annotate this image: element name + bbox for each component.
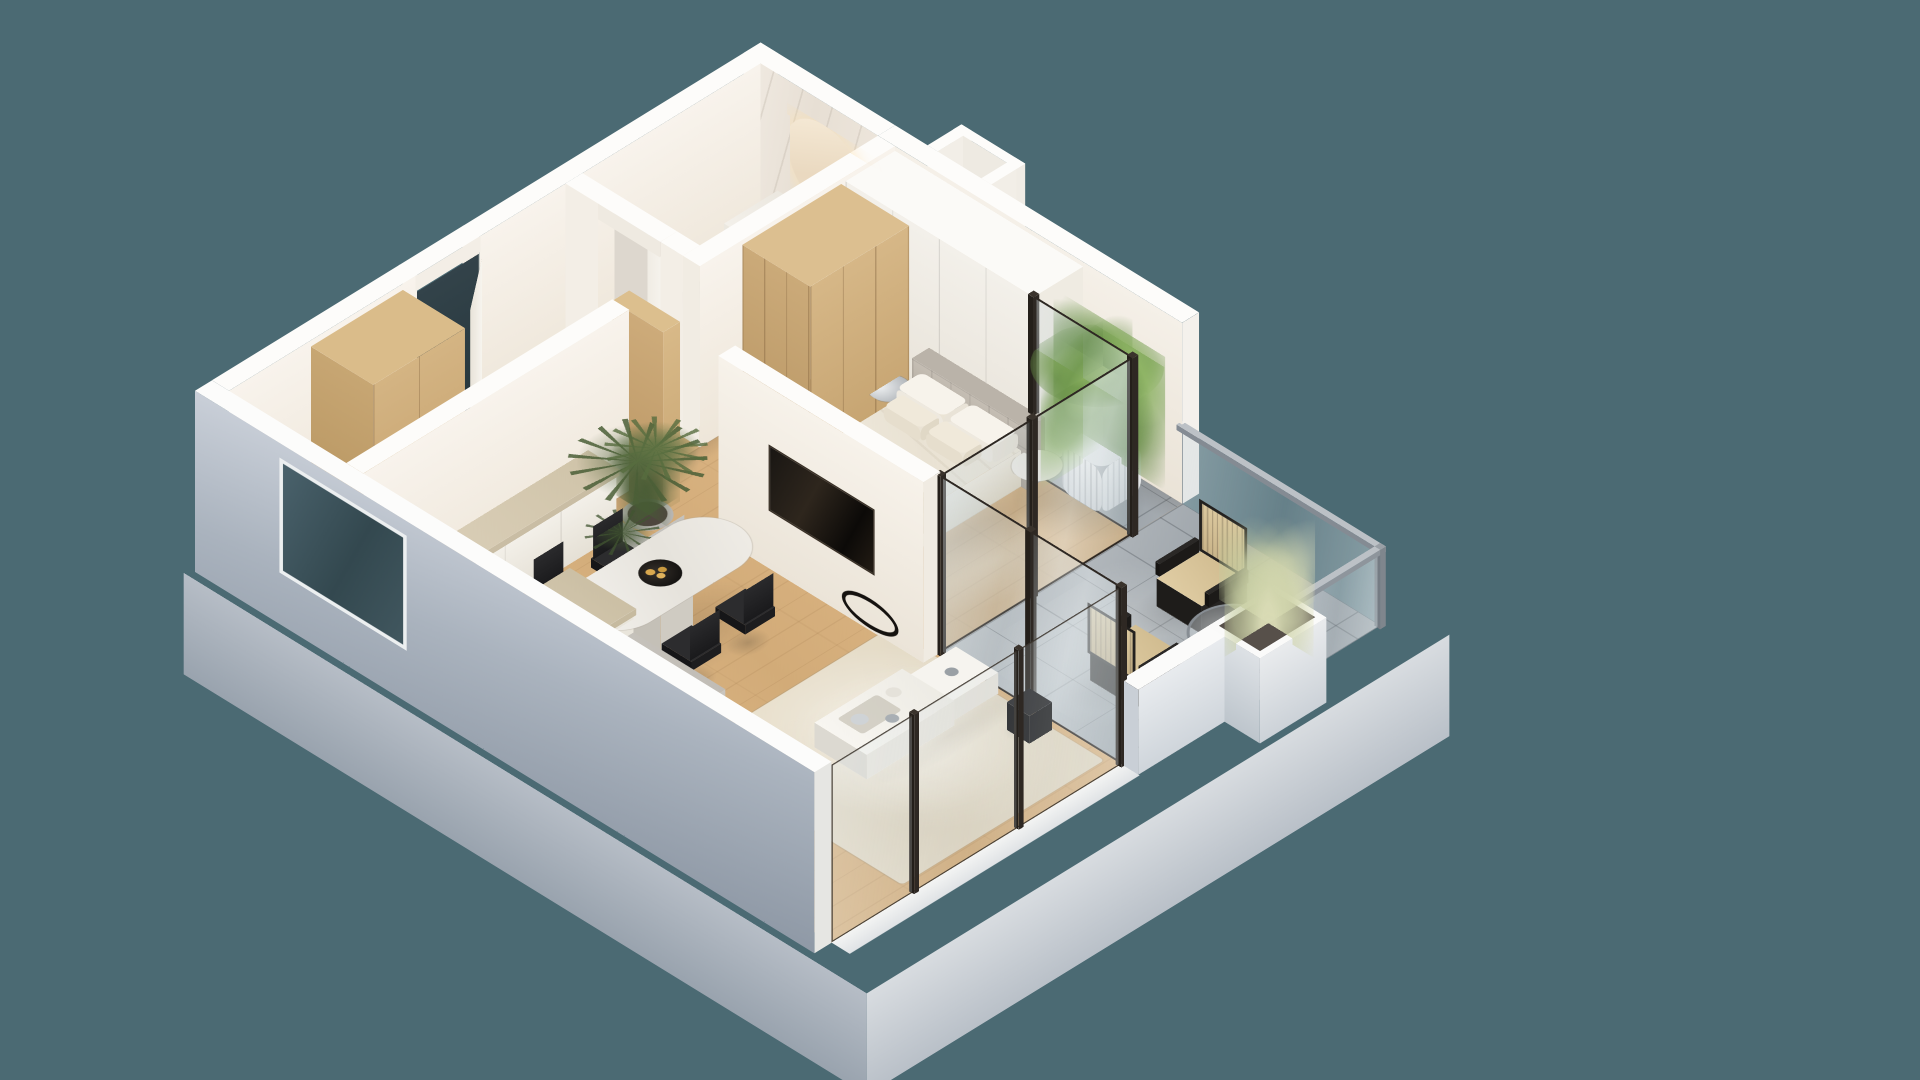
facade-sw-face-s	[814, 762, 831, 954]
glass-post-3-face-s	[1133, 355, 1139, 538]
glass-south-post-1-face-s	[914, 712, 919, 895]
glass-south-post-2-face-s	[1019, 647, 1024, 830]
apartment-3d-render-scene	[0, 0, 1920, 1080]
railing-corner-post-face-s	[1380, 546, 1386, 629]
wall-hall-east-face-w	[683, 256, 700, 448]
